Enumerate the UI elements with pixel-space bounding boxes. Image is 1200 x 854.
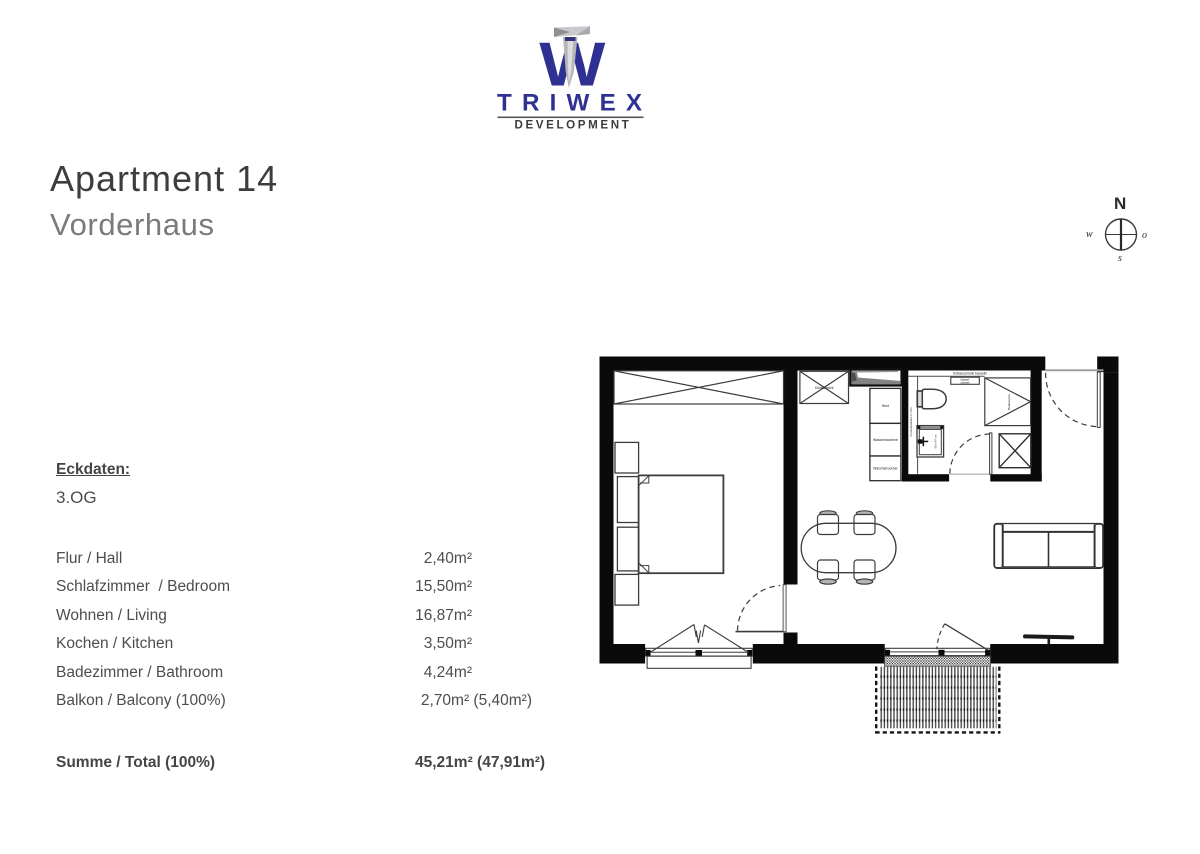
svg-text:60 x 47 cm: 60 x 47 cm — [934, 434, 938, 448]
svg-text:Waschmaschine: Waschmaschine — [873, 438, 898, 442]
svg-text:Wäschetrockner: Wäschetrockner — [873, 467, 898, 471]
svg-text:Badewanne: Badewanne — [1007, 394, 1011, 410]
svg-text:Einbauschrank bauseits: Einbauschrank bauseits — [953, 372, 987, 376]
svg-text:Kühlschrank: Kühlschrank — [815, 386, 834, 390]
svg-text:Herd: Herd — [882, 404, 889, 408]
svg-text:Vorwandinstallation h=1,05m: Vorwandinstallation h=1,05m — [910, 407, 913, 437]
svg-text:schrank: schrank — [960, 380, 970, 384]
